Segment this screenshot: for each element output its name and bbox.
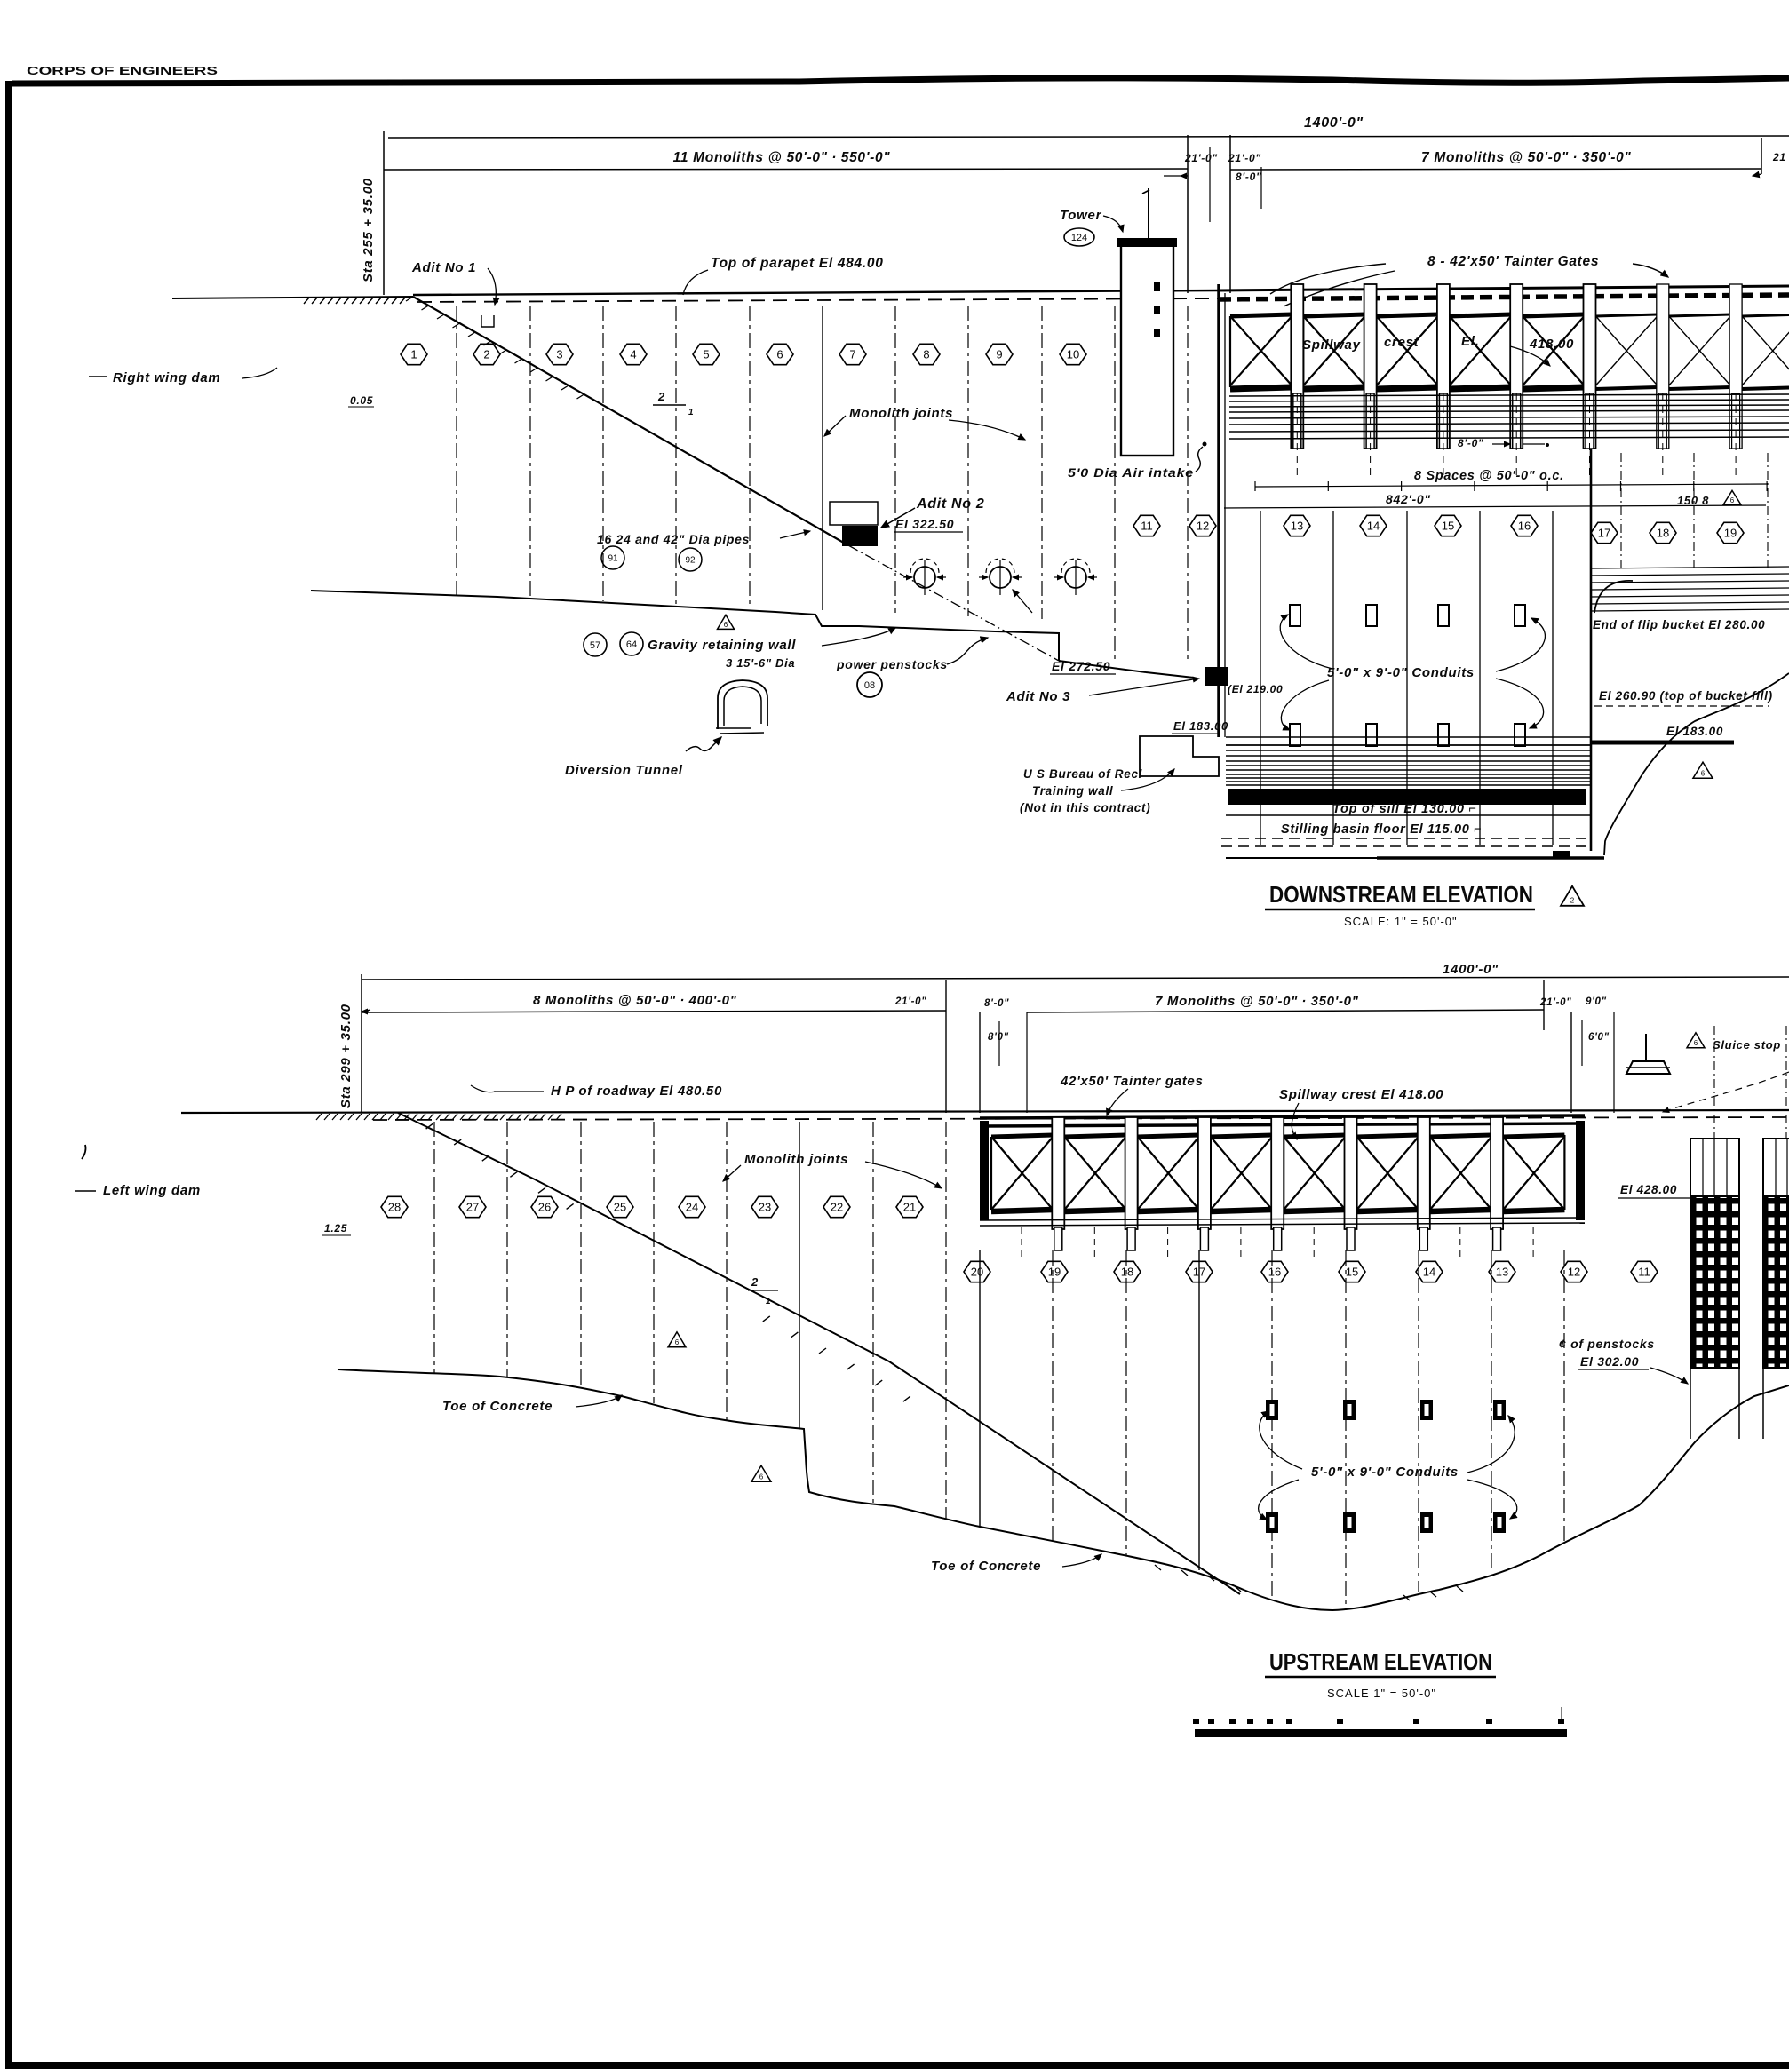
svg-text:Monolith joints: Monolith joints — [744, 1152, 848, 1167]
svg-text:0.05: 0.05 — [350, 394, 373, 407]
svg-text:Training wall: Training wall — [1032, 784, 1113, 798]
svg-text:8'-0": 8'-0" — [1458, 437, 1483, 449]
svg-text:Toe of Concrete: Toe of Concrete — [931, 1559, 1041, 1574]
svg-text:power penstocks: power penstocks — [836, 657, 948, 671]
svg-text:U S Bureau of Recl: U S Bureau of Recl — [1023, 767, 1142, 781]
svg-text:crest: crest — [1384, 335, 1419, 350]
svg-text:(Not in this contract): (Not in this contract) — [1020, 801, 1150, 814]
svg-text:SCALE: 1" = 50'-0": SCALE: 1" = 50'-0" — [1344, 915, 1458, 928]
svg-text:12: 12 — [1197, 520, 1209, 533]
svg-text:El 183.00: El 183.00 — [1173, 719, 1228, 733]
svg-text:5'-0" x 9'-0" Conduits: 5'-0" x 9'-0" Conduits — [1327, 665, 1475, 680]
svg-text:El.: El. — [1461, 334, 1479, 349]
svg-text:13: 13 — [1496, 1266, 1508, 1279]
svg-text:16: 16 — [1268, 1266, 1281, 1279]
svg-text:H P of roadway El 480.50: H P of roadway El 480.50 — [551, 1084, 722, 1099]
svg-text:6: 6 — [1694, 1039, 1698, 1047]
svg-text:7: 7 — [849, 348, 855, 361]
svg-text:Adit No 2: Adit No 2 — [916, 496, 985, 512]
svg-text:Sta 255 + 35.00: Sta 255 + 35.00 — [361, 178, 376, 282]
svg-text:8 Spaces @ 50'-0" o.c.: 8 Spaces @ 50'-0" o.c. — [1414, 469, 1564, 483]
svg-text:1: 1 — [410, 348, 417, 361]
svg-text:11: 11 — [1141, 520, 1153, 533]
svg-text:12: 12 — [1568, 1266, 1580, 1279]
svg-text:6: 6 — [1730, 496, 1735, 504]
svg-text:8'0": 8'0" — [988, 1032, 1009, 1043]
svg-text:4: 4 — [630, 348, 636, 361]
svg-text:2: 2 — [751, 1275, 759, 1289]
svg-text:42'x50' Tainter gates: 42'x50' Tainter gates — [1060, 1074, 1204, 1089]
svg-text:1400'-0": 1400'-0" — [1304, 115, 1364, 131]
svg-text:21: 21 — [1772, 151, 1786, 163]
svg-text:Diversion Tunnel: Diversion Tunnel — [565, 763, 683, 778]
svg-text:6'0": 6'0" — [1588, 1032, 1610, 1043]
svg-text:8 - 42'x50' Tainter Gates: 8 - 42'x50' Tainter Gates — [1427, 254, 1599, 269]
svg-text:92: 92 — [685, 556, 696, 566]
svg-text:1.25: 1.25 — [324, 1222, 347, 1234]
svg-text:5'-0" x 9'-0" Conduits: 5'-0" x 9'-0" Conduits — [1311, 1465, 1459, 1480]
svg-text:17: 17 — [1193, 1266, 1205, 1279]
svg-text:21'-0": 21'-0" — [1184, 152, 1218, 164]
svg-text:Toe of Concrete: Toe of Concrete — [442, 1399, 553, 1414]
svg-text:21: 21 — [903, 1201, 916, 1214]
svg-text:6: 6 — [724, 621, 728, 629]
svg-text:23: 23 — [759, 1201, 771, 1214]
svg-text:26: 26 — [538, 1201, 551, 1214]
svg-text:150 8: 150 8 — [1677, 494, 1709, 507]
svg-text:842'-0": 842'-0" — [1386, 492, 1431, 506]
svg-text:El 322.50: El 322.50 — [895, 517, 954, 531]
svg-text:08: 08 — [864, 680, 875, 691]
svg-text:9: 9 — [996, 348, 1002, 361]
svg-text:Spillway: Spillway — [1302, 337, 1361, 353]
svg-text:20: 20 — [971, 1266, 983, 1279]
svg-text:Stilling basin floor El 115.00: Stilling basin floor El 115.00 ⌐ — [1281, 822, 1482, 837]
svg-text:8 Monoliths @ 50'-0" ∙ 400'-0": 8 Monoliths @ 50'-0" ∙ 400'-0" — [533, 993, 737, 1008]
svg-text:Gravity retaining wall: Gravity retaining wall — [648, 638, 796, 653]
svg-text:3 15'-6" Dia: 3 15'-6" Dia — [726, 656, 795, 670]
svg-text:18: 18 — [1121, 1266, 1133, 1279]
svg-text:End of flip bucket El 280.00: End of flip bucket El 280.00 — [1593, 618, 1765, 631]
svg-text:7 Monoliths @ 50'-0" ∙ 350'-0": 7 Monoliths @ 50'-0" ∙ 350'-0" — [1155, 994, 1359, 1009]
svg-text:Sta 299 + 35.00: Sta 299 + 35.00 — [338, 1004, 354, 1108]
svg-text:Top of sill El 130.00 ⌐: Top of sill El 130.00 ⌐ — [1332, 802, 1477, 816]
svg-text:9'0": 9'0" — [1586, 996, 1607, 1007]
svg-text:5: 5 — [703, 348, 709, 361]
svg-text:13: 13 — [1291, 520, 1303, 533]
svg-text:Tower: Tower — [1060, 208, 1102, 223]
svg-text:18: 18 — [1657, 527, 1669, 540]
svg-text:21'-0": 21'-0" — [1539, 997, 1571, 1008]
svg-text:6: 6 — [759, 1473, 764, 1481]
svg-text:UPSTREAM ELEVATION: UPSTREAM ELEVATION — [1269, 1648, 1492, 1675]
svg-text:5'0 Dia Air intake: 5'0 Dia Air intake — [1068, 465, 1194, 480]
svg-text:14: 14 — [1367, 520, 1380, 533]
svg-text:27: 27 — [466, 1201, 479, 1214]
svg-text:19: 19 — [1048, 1266, 1061, 1279]
svg-text:CORPS OF ENGINEERS: CORPS OF ENGINEERS — [27, 65, 218, 77]
svg-text:8'-0": 8'-0" — [984, 998, 1009, 1009]
svg-text:Top of parapet El 484.00: Top of parapet El 484.00 — [711, 256, 884, 271]
svg-text:El 302.00: El 302.00 — [1580, 1354, 1639, 1369]
svg-text:7 Monoliths @ 50'-0" ∙ 350'-0": 7 Monoliths @ 50'-0" ∙ 350'-0" — [1421, 150, 1632, 165]
svg-text:21'-0": 21'-0" — [1228, 152, 1261, 164]
svg-text:Adit No 1: Adit No 1 — [411, 260, 476, 275]
svg-text:2: 2 — [657, 390, 665, 403]
svg-text:15: 15 — [1442, 520, 1454, 533]
svg-text:11 Monoliths @ 50'-0" ∙ 550'-0: 11 Monoliths @ 50'-0" ∙ 550'-0" — [673, 150, 891, 165]
svg-text:15: 15 — [1346, 1266, 1358, 1279]
svg-text:El 428.00: El 428.00 — [1620, 1183, 1677, 1196]
svg-text:22: 22 — [831, 1201, 843, 1214]
svg-text:DOWNSTREAM ELEVATION: DOWNSTREAM ELEVATION — [1269, 881, 1533, 908]
svg-text:16: 16 — [1518, 520, 1531, 533]
svg-text:8: 8 — [923, 348, 929, 361]
svg-text:2: 2 — [1570, 897, 1575, 905]
svg-text:64: 64 — [626, 639, 637, 650]
svg-text:El 260.90 (top of bucket fill): El 260.90 (top of bucket fill) — [1599, 689, 1773, 703]
svg-text:1: 1 — [766, 1297, 771, 1306]
svg-text:8'-0": 8'-0" — [1236, 171, 1261, 183]
svg-text:6: 6 — [675, 1338, 680, 1346]
svg-text:3: 3 — [556, 348, 562, 361]
svg-text:6: 6 — [1701, 770, 1706, 778]
svg-text:1: 1 — [688, 408, 694, 417]
svg-text:(El 219.00: (El 219.00 — [1228, 683, 1283, 695]
svg-text:1400'-0": 1400'-0" — [1443, 962, 1499, 977]
svg-text:Right wing dam: Right wing dam — [113, 370, 220, 385]
svg-text:17: 17 — [1598, 527, 1610, 540]
svg-text:24: 24 — [686, 1201, 698, 1214]
svg-text:25: 25 — [614, 1201, 626, 1214]
svg-text:Sluice stop: Sluice stop — [1713, 1038, 1781, 1052]
svg-text:28: 28 — [388, 1201, 401, 1214]
svg-text:Spillway crest El 418.00: Spillway crest El 418.00 — [1279, 1087, 1443, 1102]
svg-text:16 24 and 42" Dia pipes: 16 24 and 42" Dia pipes — [597, 532, 750, 546]
svg-text:124: 124 — [1071, 233, 1087, 243]
svg-text:19: 19 — [1724, 527, 1737, 540]
svg-text:14: 14 — [1423, 1266, 1435, 1279]
svg-text:6: 6 — [776, 348, 783, 361]
svg-text:¢ of penstocks: ¢ of penstocks — [1559, 1337, 1655, 1351]
svg-text:SCALE 1" = 50'-0": SCALE 1" = 50'-0" — [1327, 1687, 1436, 1700]
svg-text:Adit No 3: Adit No 3 — [1006, 689, 1070, 704]
svg-text:Left wing dam: Left wing dam — [103, 1183, 201, 1198]
svg-text:91: 91 — [608, 554, 618, 564]
svg-text:418.00: 418.00 — [1529, 337, 1574, 352]
svg-text:Monolith joints: Monolith joints — [849, 406, 953, 421]
svg-text:57: 57 — [590, 640, 600, 651]
svg-text:11: 11 — [1638, 1266, 1650, 1279]
svg-text:10: 10 — [1067, 348, 1079, 361]
svg-text:2: 2 — [483, 348, 489, 361]
svg-text:21'-0": 21'-0" — [894, 996, 926, 1007]
